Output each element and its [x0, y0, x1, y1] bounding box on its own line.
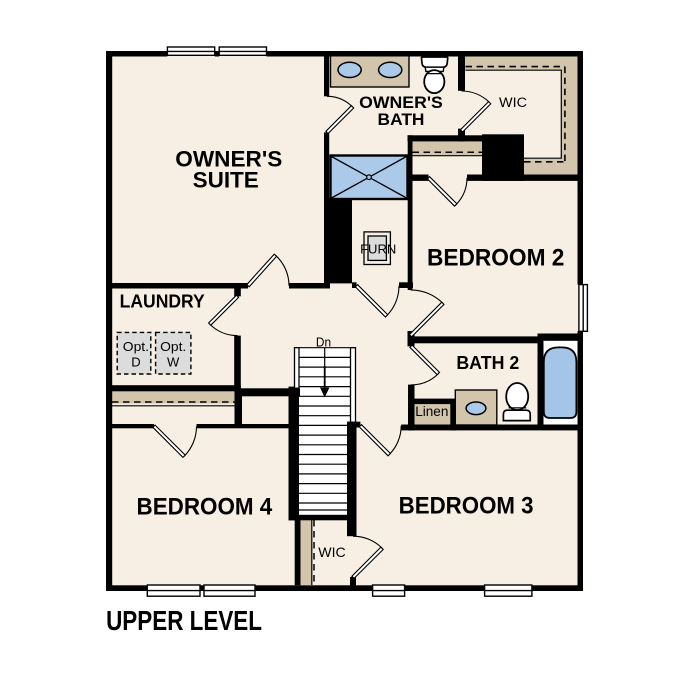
svg-text:Linen: Linen [415, 403, 448, 419]
svg-text:FURN: FURN [360, 241, 396, 256]
svg-text:D: D [131, 355, 140, 370]
svg-text:SUITE: SUITE [193, 168, 259, 193]
svg-text:WIC: WIC [318, 544, 345, 560]
svg-text:OWNER'S: OWNER'S [359, 93, 443, 112]
svg-text:BEDROOM 4: BEDROOM 4 [137, 493, 273, 520]
svg-text:BATH 2: BATH 2 [456, 353, 519, 373]
svg-text:Opt.: Opt. [160, 339, 186, 354]
svg-text:BEDROOM 3: BEDROOM 3 [399, 493, 534, 520]
svg-text:LAUNDRY: LAUNDRY [120, 291, 205, 311]
svg-text:BEDROOM 2: BEDROOM 2 [427, 245, 565, 272]
svg-text:BATH: BATH [378, 110, 425, 129]
svg-text:W: W [167, 355, 180, 370]
svg-text:Dn: Dn [316, 335, 331, 350]
svg-text:Opt.: Opt. [123, 339, 149, 354]
svg-text:WIC: WIC [499, 95, 527, 110]
svg-text:UPPER LEVEL: UPPER LEVEL [106, 605, 262, 636]
